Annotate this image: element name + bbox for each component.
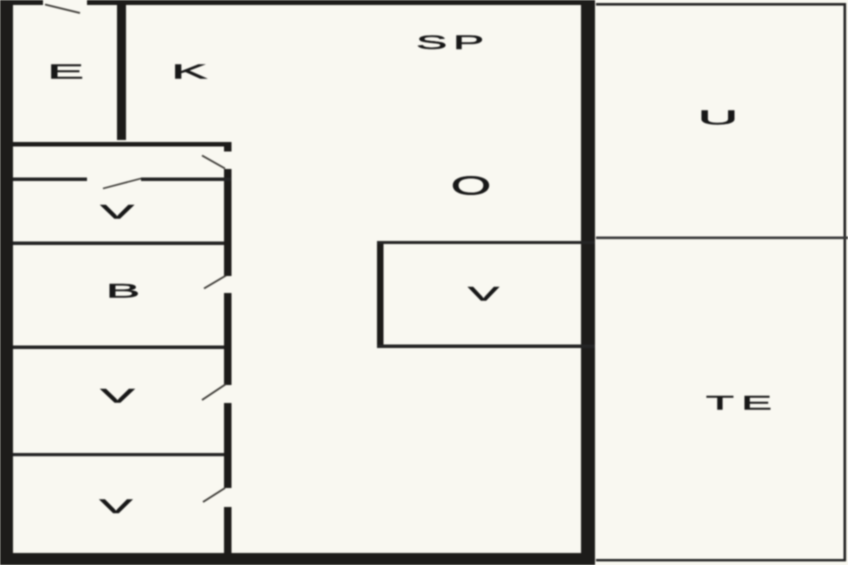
svg-text:E: E [47, 60, 84, 82]
svg-text:V: V [468, 283, 499, 304]
svg-text:B: B [106, 281, 140, 302]
svg-text:V: V [100, 386, 134, 407]
svg-text:V: V [100, 496, 133, 517]
svg-text:U: U [698, 107, 738, 129]
svg-text:V: V [100, 202, 134, 223]
svg-text:K: K [171, 60, 207, 83]
svg-text:TE: TE [706, 393, 779, 414]
svg-text:O: O [451, 171, 491, 200]
svg-text:SP: SP [416, 32, 490, 53]
